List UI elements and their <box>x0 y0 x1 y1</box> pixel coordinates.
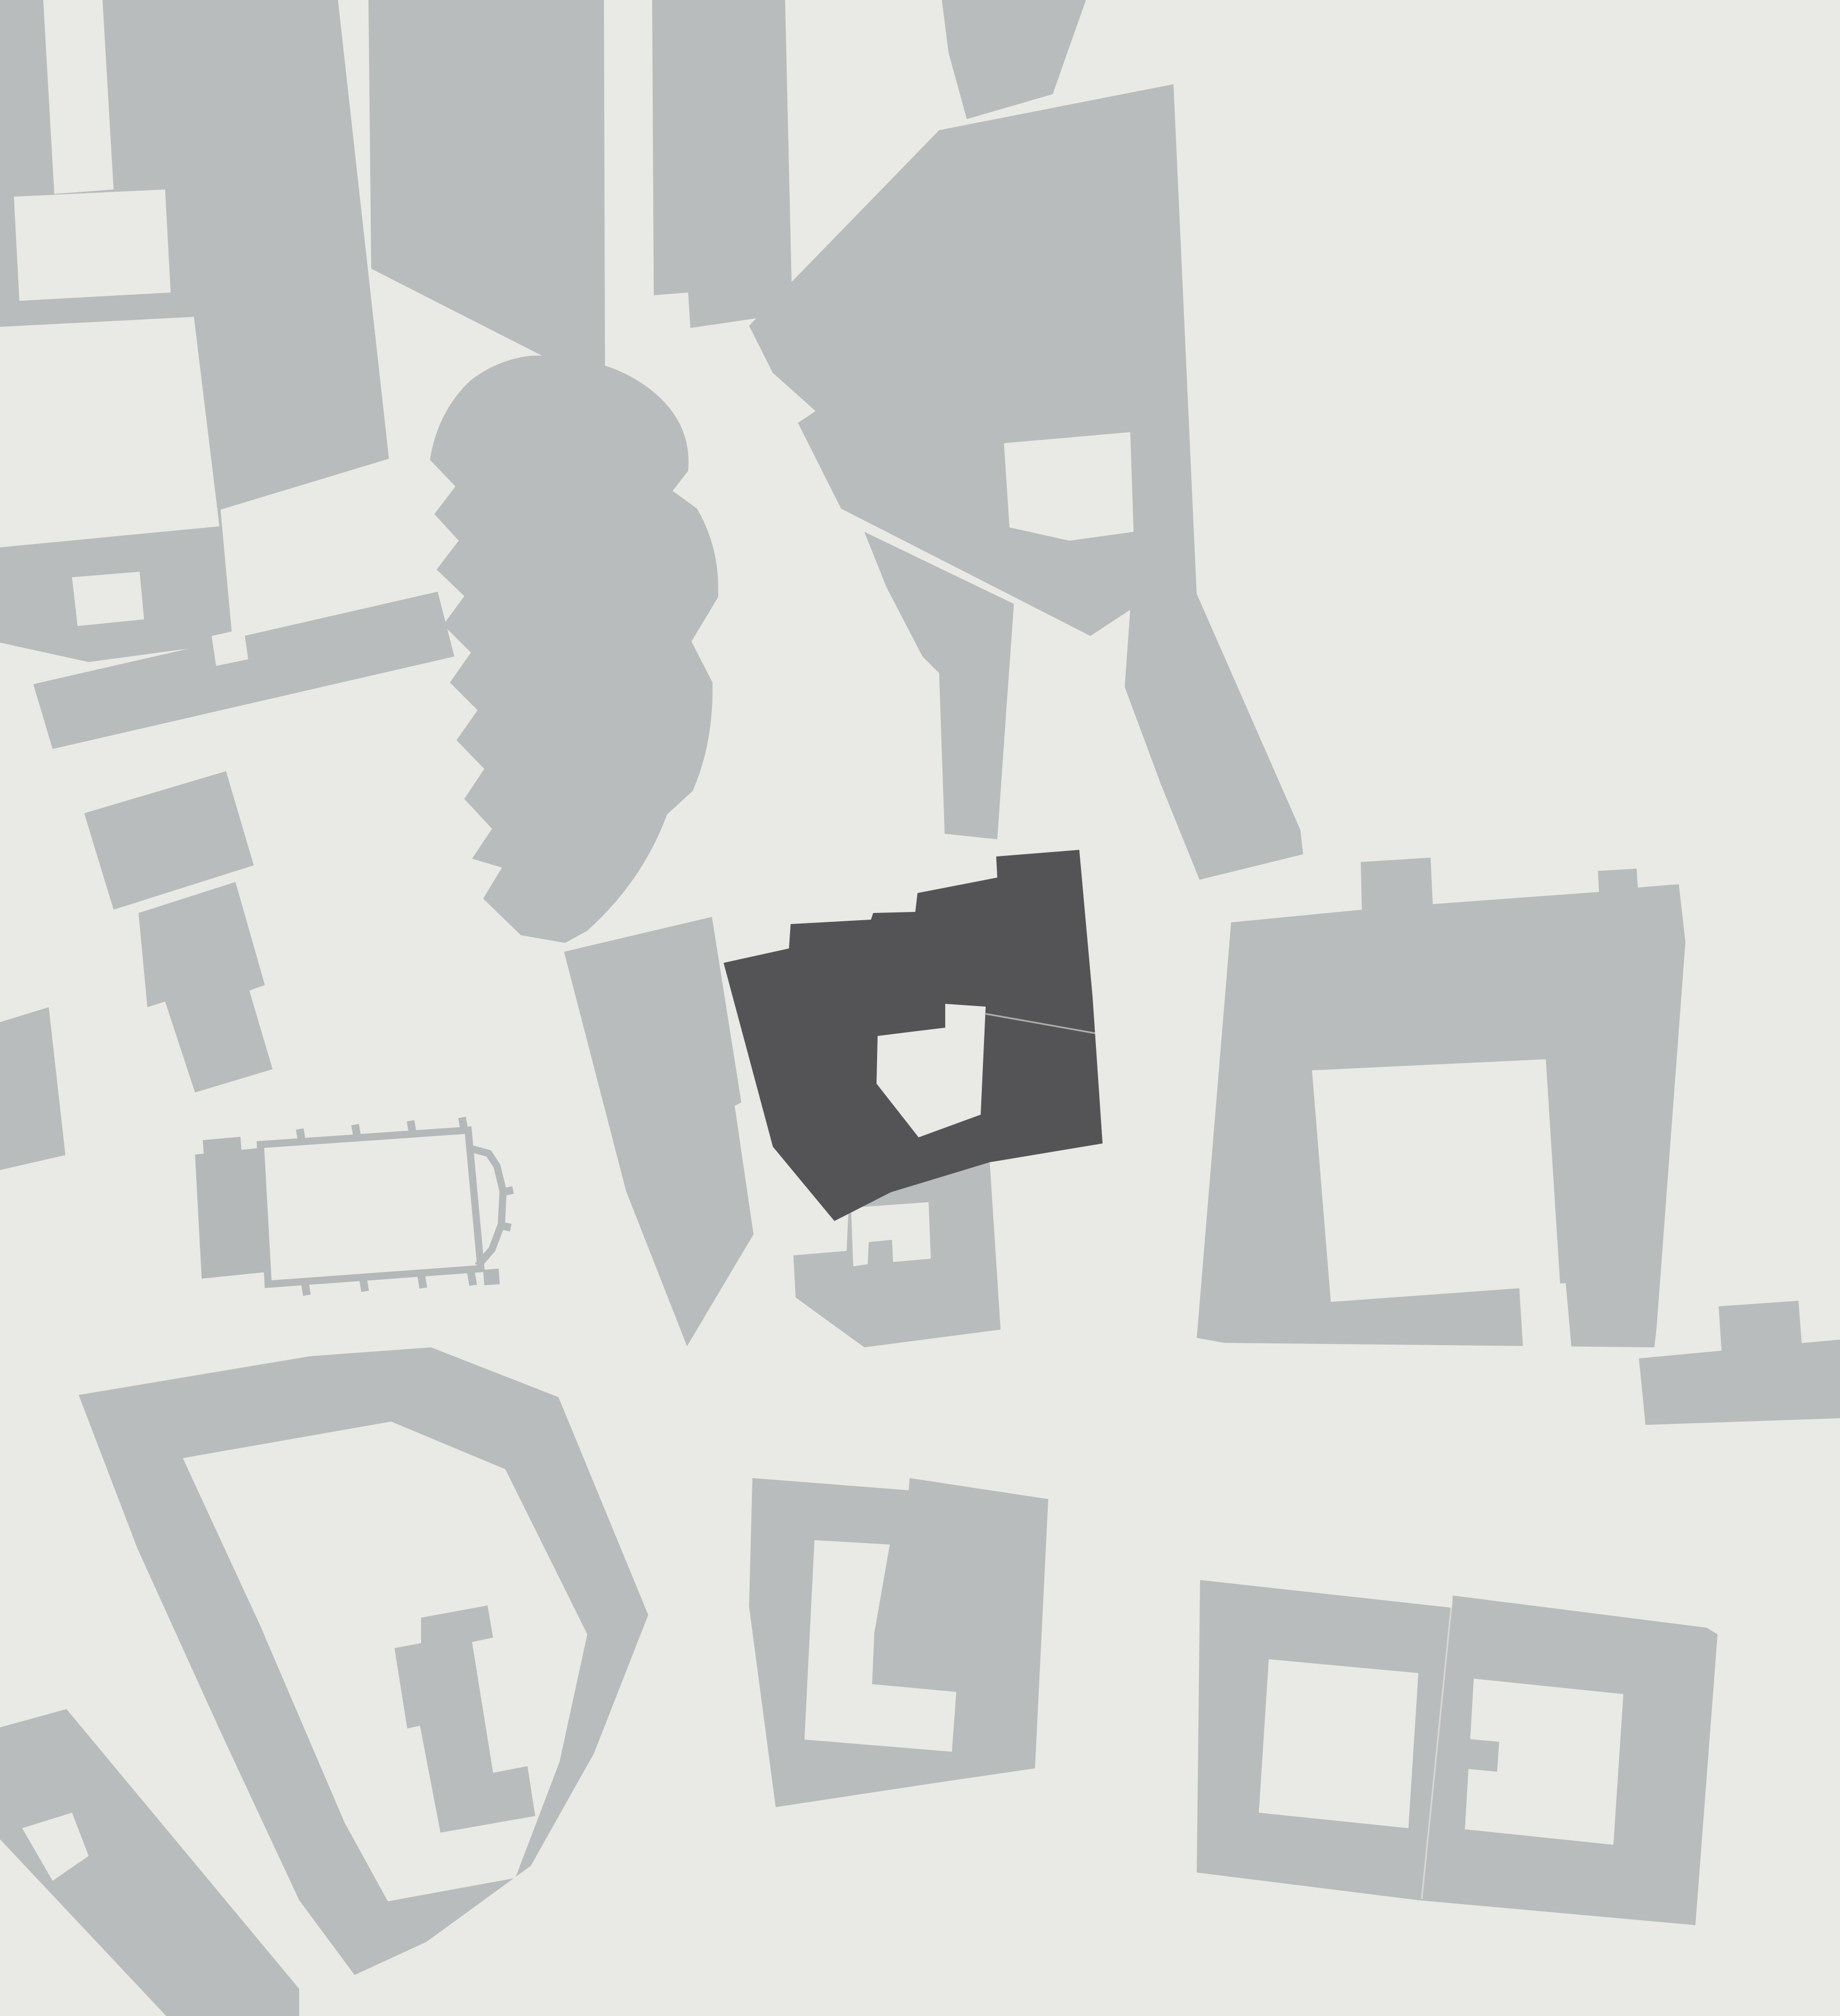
se-court-tab <box>1463 1738 1499 1772</box>
church-pinnacle <box>483 1269 500 1285</box>
south-mid-block <box>749 1478 1048 1807</box>
church-nave <box>260 1130 481 1284</box>
far-right-tower <box>1719 1301 1805 1392</box>
top-left-court-c <box>72 572 144 626</box>
east-court-yard <box>1312 1059 1560 1302</box>
church-buttress-n4 <box>462 1117 464 1131</box>
church-buttress-s3 <box>421 1275 423 1288</box>
site-plan-map <box>0 0 1840 2016</box>
church-buttress-s2 <box>363 1278 365 1291</box>
church-buttress-s1 <box>305 1282 307 1295</box>
se-court-west <box>1259 1659 1418 1828</box>
church-apse-tick-1 <box>502 1190 513 1192</box>
top-slab-b <box>368 0 605 388</box>
top-left-street-stub <box>43 0 114 194</box>
ne-court <box>1004 432 1134 541</box>
church-buttress-s4 <box>471 1272 473 1285</box>
top-left-court-b <box>0 317 219 547</box>
church-buttress-n2 <box>355 1125 357 1138</box>
church-tower <box>195 1148 267 1279</box>
top-left-court-a <box>14 189 171 301</box>
church-buttress-n1 <box>300 1129 302 1142</box>
top-parallelogram <box>942 0 1086 119</box>
site-plan-svg <box>0 0 1840 2016</box>
church-apse-tick-2 <box>500 1225 511 1228</box>
west-angled-leg <box>139 882 273 1092</box>
ne-mass <box>749 84 1197 636</box>
left-edge-wedge <box>0 1007 65 1170</box>
ne-tail <box>1125 594 1303 880</box>
church-buttress-n3 <box>411 1121 413 1134</box>
top-slab-c <box>652 0 792 328</box>
concert-blob <box>430 356 718 943</box>
church-tower-cap <box>203 1137 242 1156</box>
west-neighbor-slab <box>564 917 754 1346</box>
